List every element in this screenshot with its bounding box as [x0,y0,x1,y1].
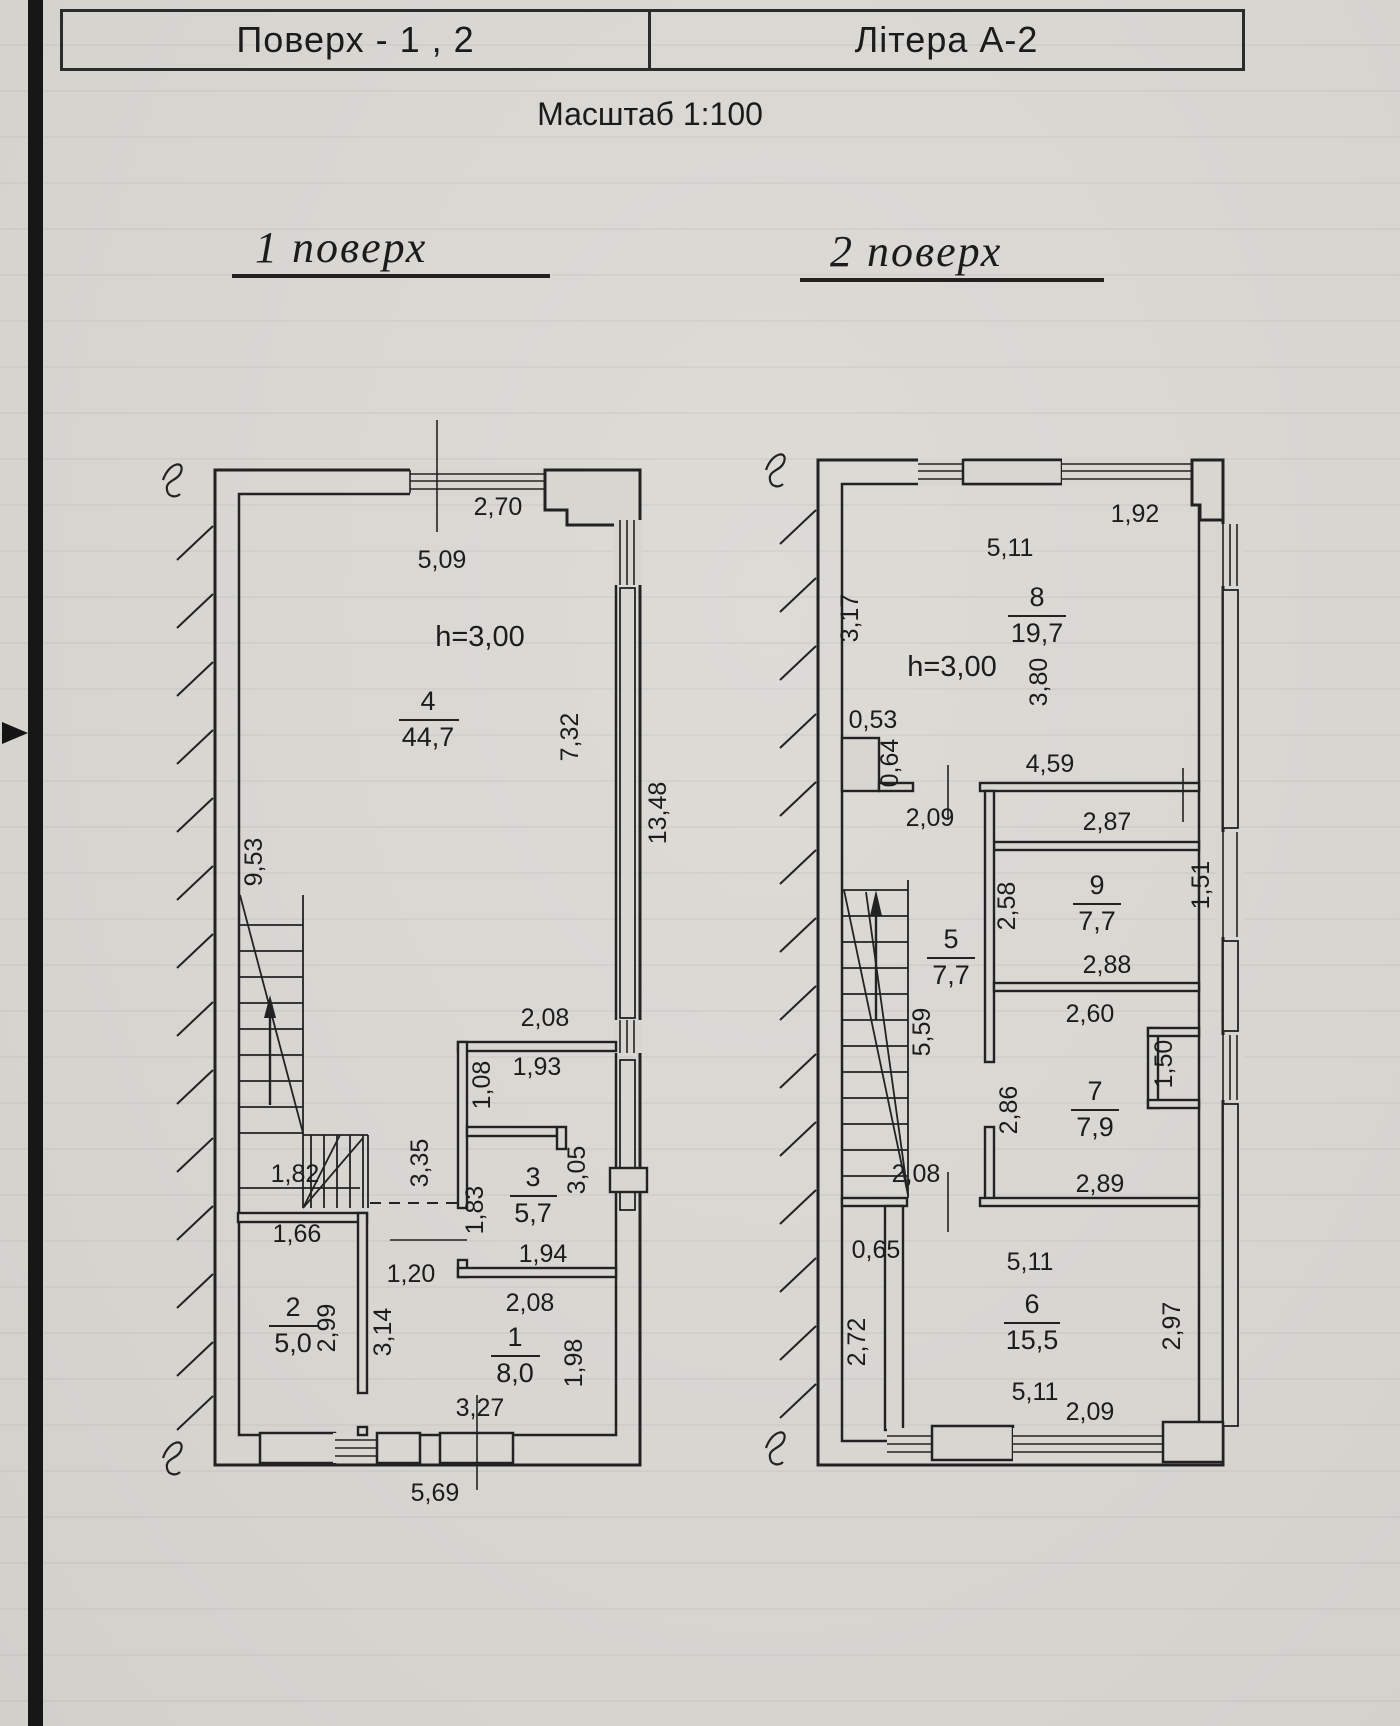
dim-label: 2,09 [906,804,955,832]
room-area: 19,7 [1011,618,1064,648]
floor1-right-pier [620,588,635,1018]
dim-label: 3,35 [406,1139,434,1188]
room-number: 6 [1024,1289,1039,1319]
floor2-right-pier-1 [1223,590,1238,828]
floorplans-drawing: 2,70 5,09 h=3,00 4 44,7 9,53 7,32 13,48 … [0,0,1400,1726]
dim-label: 1,92 [1111,500,1160,528]
room-number: 3 [525,1162,540,1192]
dim-label: 1,82 [271,1160,320,1188]
floor1-dimension-ticks [390,420,477,1490]
dim-label: 2,60 [1066,1000,1115,1028]
dim-label: 4,59 [1026,750,1075,778]
dim-label: 5,11 [1012,1378,1059,1406]
floor1-hatching [177,526,213,1430]
room-number: 2 [285,1292,300,1322]
dim-label: 3,17 [836,594,864,643]
room-area: 7,9 [1076,1112,1114,1142]
dim-label: 1,50 [1150,1040,1178,1089]
floor2-bottom-corner-pier [1163,1422,1223,1462]
dim-label: 2,08 [892,1160,941,1188]
dim-label: 5,69 [411,1479,460,1507]
dim-label: 0,65 [852,1236,901,1264]
floor2-break-symbol-top [766,454,785,486]
dim-label: 2,09 [1066,1398,1115,1426]
floor2-corner-pier [1192,460,1223,520]
dim-label: 0,64 [876,739,904,788]
room-area: 5,7 [514,1198,552,1228]
floor1-plan: 2,70 5,09 h=3,00 4 44,7 9,53 7,32 13,48 … [163,420,672,1507]
floor1-height-note: h=3,00 [435,621,525,653]
dim-label: 1,08 [468,1061,496,1110]
dim-label: 9,53 [240,838,268,887]
dim-label: 2,89 [1076,1170,1125,1198]
floor2-plan: 1,92 5,11 8 19,7 h=3,00 3,80 3,17 0,53 0… [766,454,1245,1465]
dim-label: 3,14 [369,1308,397,1357]
dim-label: 2,88 [1083,951,1132,979]
floor2-right-pier-2 [1223,941,1238,1031]
dim-label: 5,11 [1007,1248,1054,1276]
floor2-hatching [780,510,816,1418]
dim-label: 1,51 [1187,861,1215,910]
floor1-break-symbol-bottom [163,1442,182,1474]
room-area: 7,7 [1078,906,1116,936]
floor1-corner-pier [545,470,640,525]
floor1-bottom-window-1 [260,1433,335,1463]
floor1-outer-wall [215,470,640,1465]
dim-label: 2,97 [1158,1302,1186,1351]
floor1-top-window [410,470,545,493]
dim-label: 2,86 [995,1086,1023,1135]
dim-label: 3,80 [1025,658,1053,707]
dim-label: 7,32 [556,713,584,762]
dim-label: 5,59 [908,1008,936,1057]
floor1-break-symbol-top [163,464,182,496]
dim-label: 3,05 [563,1146,591,1195]
dim-label: 0,53 [849,706,898,734]
dim-label: 2,08 [521,1004,570,1032]
room-area: 7,7 [932,960,970,990]
dim-label: 3,27 [456,1394,505,1422]
dim-label: 1,98 [560,1339,588,1388]
floor1-stairs-direction-arrow [264,995,276,1105]
room-number: 4 [420,686,435,716]
floor2-dimension-ticks [948,765,1183,1232]
dim-label: 5,09 [418,546,467,574]
floor2-height-note: h=3,00 [907,651,997,683]
dim-label: 2,87 [1083,808,1132,836]
room-area: 44,7 [402,722,455,752]
floor2-bottom-pier [932,1426,1013,1460]
dim-label: 2,70 [474,493,523,521]
dim-label: 1,83 [461,1186,489,1235]
room-number: 8 [1029,582,1044,612]
room-number: 9 [1089,870,1104,900]
dim-label: 2,99 [313,1304,341,1353]
room-area: 15,5 [1006,1325,1059,1355]
dim-label: 2,58 [993,882,1021,931]
room-area: 8,0 [496,1358,534,1388]
room-number: 5 [943,924,958,954]
room-number: 7 [1087,1076,1102,1106]
floor2-right-pier-3 [1223,1104,1238,1426]
dim-label: 1,93 [513,1053,562,1081]
dim-label: 2,08 [506,1289,555,1317]
dim-label: 13,48 [644,782,672,845]
dim-label: 1,66 [273,1220,322,1248]
dim-label: 5,11 [987,534,1034,562]
floor2-stairs [841,880,908,1198]
room-area: 5,0 [274,1328,312,1358]
room-number: 1 [507,1322,522,1352]
floor2-top-pier [963,460,1062,484]
floor1-bottom-pier [377,1433,420,1463]
dim-label: 2,72 [843,1318,871,1367]
dim-label: 1,20 [387,1260,436,1288]
dim-label: 1,94 [519,1240,568,1268]
scanned-floorplan-page: Поверх - 1 , 2 Літера А-2 Масштаб 1:100 … [0,0,1400,1726]
floor2-break-symbol-bottom [766,1432,785,1464]
